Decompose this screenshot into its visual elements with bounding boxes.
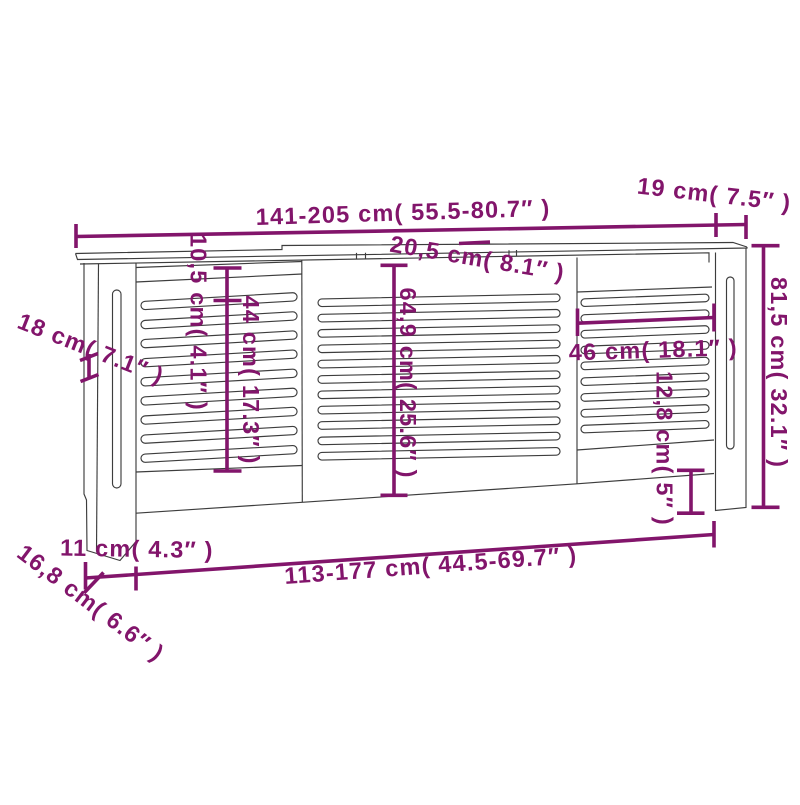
svg-text:44 cm( 17.3″ ): 44 cm( 17.3″ ) [238,296,264,465]
svg-text:46 cm( 18.1″ ): 46 cm( 18.1″ ) [568,334,738,365]
svg-text:11 cm( 4.3″ ): 11 cm( 4.3″ ) [60,535,214,564]
svg-text:10,5 cm( 4.1″ ): 10,5 cm( 4.1″ ) [186,234,212,411]
svg-text:81,5 cm( 32.1″ ): 81,5 cm( 32.1″ ) [766,277,792,468]
svg-text:12,8 cm( 5″ ): 12,8 cm( 5″ ) [652,371,678,526]
svg-text:64,9 cm( 25.6″ ): 64,9 cm( 25.6″ ) [395,288,421,479]
